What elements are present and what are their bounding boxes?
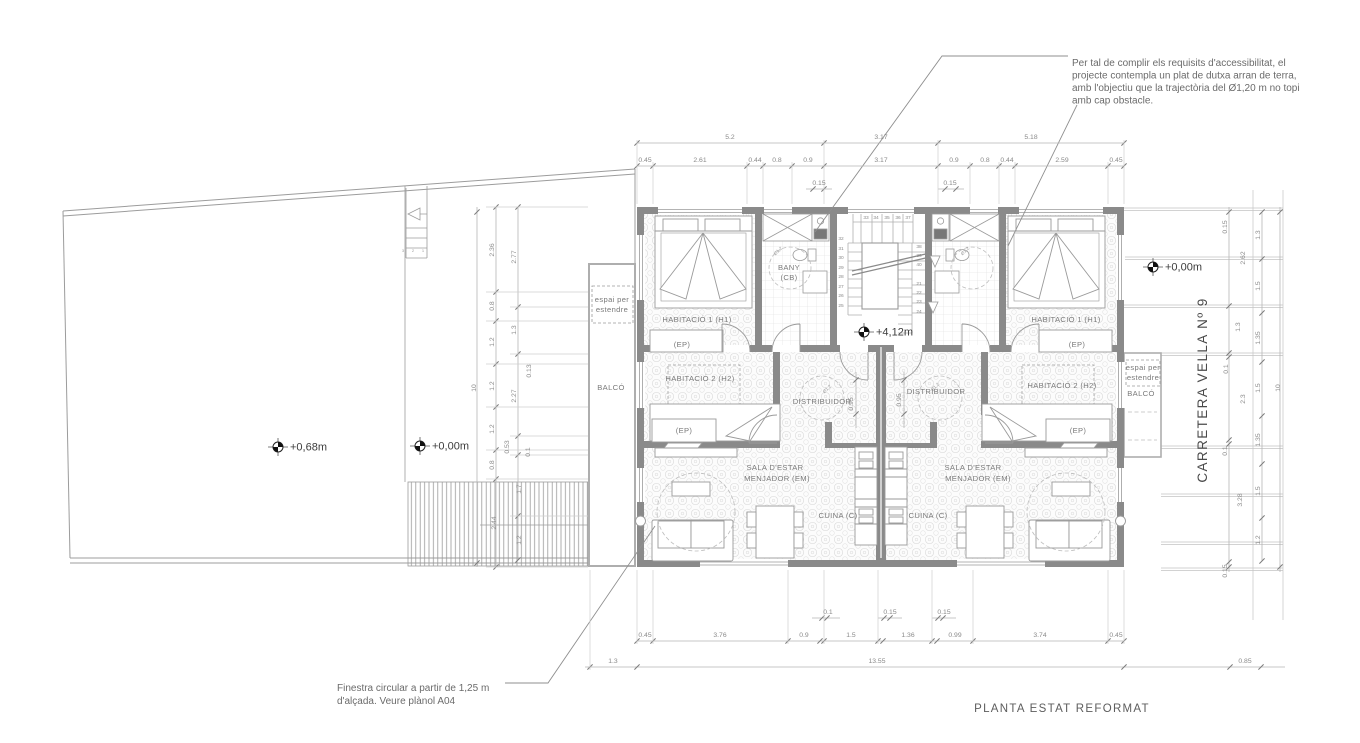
stair-step-number: 23 (916, 299, 922, 305)
tv-table-right (1052, 482, 1090, 496)
dimension-label: 1.3 (1255, 230, 1262, 240)
room-label: HABITACIÓ 1 (H1) (662, 315, 731, 324)
dimension-label: 0.9 (949, 157, 959, 164)
dimension-label: 2.77 (511, 250, 518, 263)
level-label: +0,00m (1165, 262, 1202, 274)
dimension-label: 13.55 (868, 658, 885, 665)
room-label: HABITACIÓ 2 (H2) (1027, 381, 1096, 390)
dimension-label: 2.36 (489, 243, 496, 256)
dimension-label: 1.2 (489, 424, 496, 434)
dimension-label: 2.59 (1055, 157, 1068, 164)
stair-step-number: 26 (838, 293, 844, 299)
dimension-label: 5.2 (725, 134, 735, 141)
dimension-label: 0.8 (489, 460, 496, 470)
circular-window-right (1116, 516, 1126, 526)
room-label: (EP) (674, 340, 691, 349)
stair-step-number: 1 (422, 248, 425, 253)
dimension-label: 0.1 (525, 447, 532, 457)
dimension-label: 10 (471, 384, 478, 392)
stair-step-number: 40 (916, 262, 922, 268)
stair-step-number: 36 (895, 215, 901, 221)
stair-step-number: 35 (884, 215, 890, 221)
circular-window-left (636, 516, 646, 526)
stair-step-number: 22 (916, 290, 922, 296)
circular-window-note-line: d'alçada. Veure plànol A04 (337, 696, 456, 707)
room-label: BANY (778, 263, 800, 272)
dimension-label: 1.2 (489, 337, 496, 347)
dimension-label: 0.1 (1222, 446, 1229, 456)
dimension-label: 0.15 (943, 180, 956, 187)
room-label: HABITACIÓ 2 (H2) (665, 374, 734, 383)
dimension-label: 1.36 (901, 632, 914, 639)
dimension-label: 0.53 (504, 440, 511, 453)
level-label: +4,12m (876, 327, 913, 339)
dimension-label: 0.8 (772, 157, 782, 164)
room-label: MENJADOR (EM) (945, 474, 1011, 483)
dimension-label: 1.5 (1255, 486, 1262, 496)
stair-step-number: 39 (916, 253, 922, 259)
stair-step-number: 24 (916, 309, 922, 315)
dimension-label: 0.44 (1000, 157, 1013, 164)
dimension-label: 3.74 (1033, 632, 1046, 639)
dimension-label: 1.5 (1255, 281, 1262, 291)
terrace-steps-hatch (408, 482, 588, 566)
accessibility-note-line: projecte contempla un plat de dutxa arra… (1072, 71, 1297, 82)
dimension-label: 1.7 (516, 484, 523, 494)
stair-step-number: 2 (412, 248, 415, 253)
dimension-label: 10 (1275, 384, 1282, 392)
dimension-label: 3.28 (1237, 493, 1244, 506)
room-label: SALA D'ESTAR (945, 463, 1002, 472)
dimension-label: 1.5 (1255, 383, 1262, 393)
stair-step-number: 30 (838, 255, 844, 261)
dimension-label: 1.35 (1255, 331, 1262, 344)
dimension-label: 0.45 (1109, 632, 1122, 639)
dimension-label: 0.44 (748, 157, 761, 164)
dimension-label: 0.95 (896, 393, 903, 406)
sideboard-left (655, 448, 737, 457)
dimension-label: 1.35 (1255, 433, 1262, 446)
dimension-label: 1.2 (1255, 535, 1262, 545)
room-label: (EP) (676, 426, 693, 435)
room-label: espai per (595, 295, 630, 304)
room-label: BALCÓ (1127, 389, 1155, 398)
room-label: BALCÓ (597, 383, 625, 392)
dimension-label: 0.15 (937, 609, 950, 616)
plan-drawing: 5.23.175.180.452.610.440.80.93.170.90.80… (0, 0, 1360, 743)
dimension-label: 0.15 (1222, 564, 1229, 577)
room-label: HABITACIÓ 1 (H1) (1031, 315, 1100, 324)
dimension-label: 1.2 (489, 381, 496, 391)
room-label: (EP) (1069, 340, 1086, 349)
dimension-label: 1.3 (1235, 322, 1242, 332)
stair-step-number: 25 (838, 303, 844, 309)
toilet-left (808, 249, 816, 261)
room-label: (EP) (1070, 426, 1087, 435)
dimension-label: 2.27 (511, 389, 518, 402)
dimension-label: 0.9 (803, 157, 813, 164)
stair-step-number: 31 (838, 246, 844, 252)
stair-step-number: 34 (873, 215, 879, 221)
stair-step-number: 38 (916, 244, 922, 250)
stair-void (862, 243, 898, 309)
dimension-label: 3.76 (713, 632, 726, 639)
dimension-label: 2.61 (693, 157, 706, 164)
dimension-label: 3.17 (874, 157, 887, 164)
level-label: +0,00m (432, 441, 469, 453)
dimension-label: 2.3 (1240, 394, 1247, 404)
stair-step-number: 32 (838, 236, 844, 242)
dimension-label: 0.13 (526, 364, 533, 377)
room-label: MENJADOR (EM) (744, 474, 810, 483)
stair-step-number: 37 (905, 215, 911, 221)
accessibility-note-line: amb l'objectiu que la trajectòria del Ø1… (1072, 83, 1300, 94)
dimension-label: 0.8 (489, 301, 496, 311)
dimension-label: 0.15 (812, 180, 825, 187)
stair-step-number: 33 (863, 215, 869, 221)
dimension-label: 1.3 (511, 325, 518, 335)
circular-window-note-line: Finestra circular a partir de 1,25 m (337, 683, 489, 694)
stair-step-number: 29 (838, 265, 844, 271)
drawing-title: PLANTA ESTAT REFORMAT (974, 703, 1150, 715)
dimension-label: 0.85 (1238, 658, 1251, 665)
dimension-label: 5.18 (1024, 134, 1037, 141)
accessibility-note-line: Per tal de complir els requisits d'acces… (1072, 58, 1286, 69)
room-label: SALA D'ESTAR (747, 463, 804, 472)
room-label: CUINA (C) (818, 511, 857, 520)
dimension-label: 0.1 (1223, 364, 1230, 374)
dimension-label: 0.15 (883, 609, 896, 616)
stair-step-number: 21 (916, 281, 922, 287)
dining-table-left (756, 506, 794, 558)
dimension-label: 2.44 (491, 516, 498, 529)
stair-direction-arrow-icon (408, 208, 427, 220)
dimension-label: 2.62 (1240, 251, 1247, 264)
terrace-outline (63, 169, 635, 566)
room-label: CUINA (C) (908, 511, 947, 520)
street-name-label: CARRETERA VELLA Nº 9 (1195, 297, 1210, 482)
stair-step-number: 3 (402, 248, 405, 253)
room-label: estendre (596, 305, 628, 314)
dimension-label: 0.45 (638, 157, 651, 164)
room-label: (CB) (780, 273, 797, 282)
dimension-label: 0.9 (799, 632, 809, 639)
dimension-label: 0.45 (638, 632, 651, 639)
floor-plan-sheet: 5.23.175.180.452.610.440.80.93.170.90.80… (0, 0, 1360, 743)
dimension-label: 0.8 (980, 157, 990, 164)
dimension-label: 1.3 (608, 658, 618, 665)
room-label: DISTRIBUIDOR (793, 397, 852, 406)
dimension-label: 1.5 (846, 632, 856, 639)
dimension-label: 0.1 (823, 609, 833, 616)
level-label: +0,68m (290, 442, 327, 454)
stair-step-number: 28 (838, 274, 844, 280)
stair-step-number: 27 (838, 284, 844, 290)
tv-table-left (672, 482, 710, 496)
note-leader-left-shower (815, 56, 1068, 232)
dimension-label: 0.99 (948, 632, 961, 639)
accessibility-note-line: amb cap obstacle. (1072, 96, 1153, 107)
sideboard-right (1025, 448, 1107, 457)
dimension-label: 1.2 (516, 535, 523, 545)
dimension-label: 0.15 (1222, 220, 1229, 233)
dining-table-right (966, 506, 1004, 558)
room-label: espai per (1126, 363, 1161, 372)
dimension-label: 3.17 (874, 134, 887, 141)
dimension-label: 0.45 (1109, 157, 1122, 164)
room-label: estendre (1127, 373, 1159, 382)
